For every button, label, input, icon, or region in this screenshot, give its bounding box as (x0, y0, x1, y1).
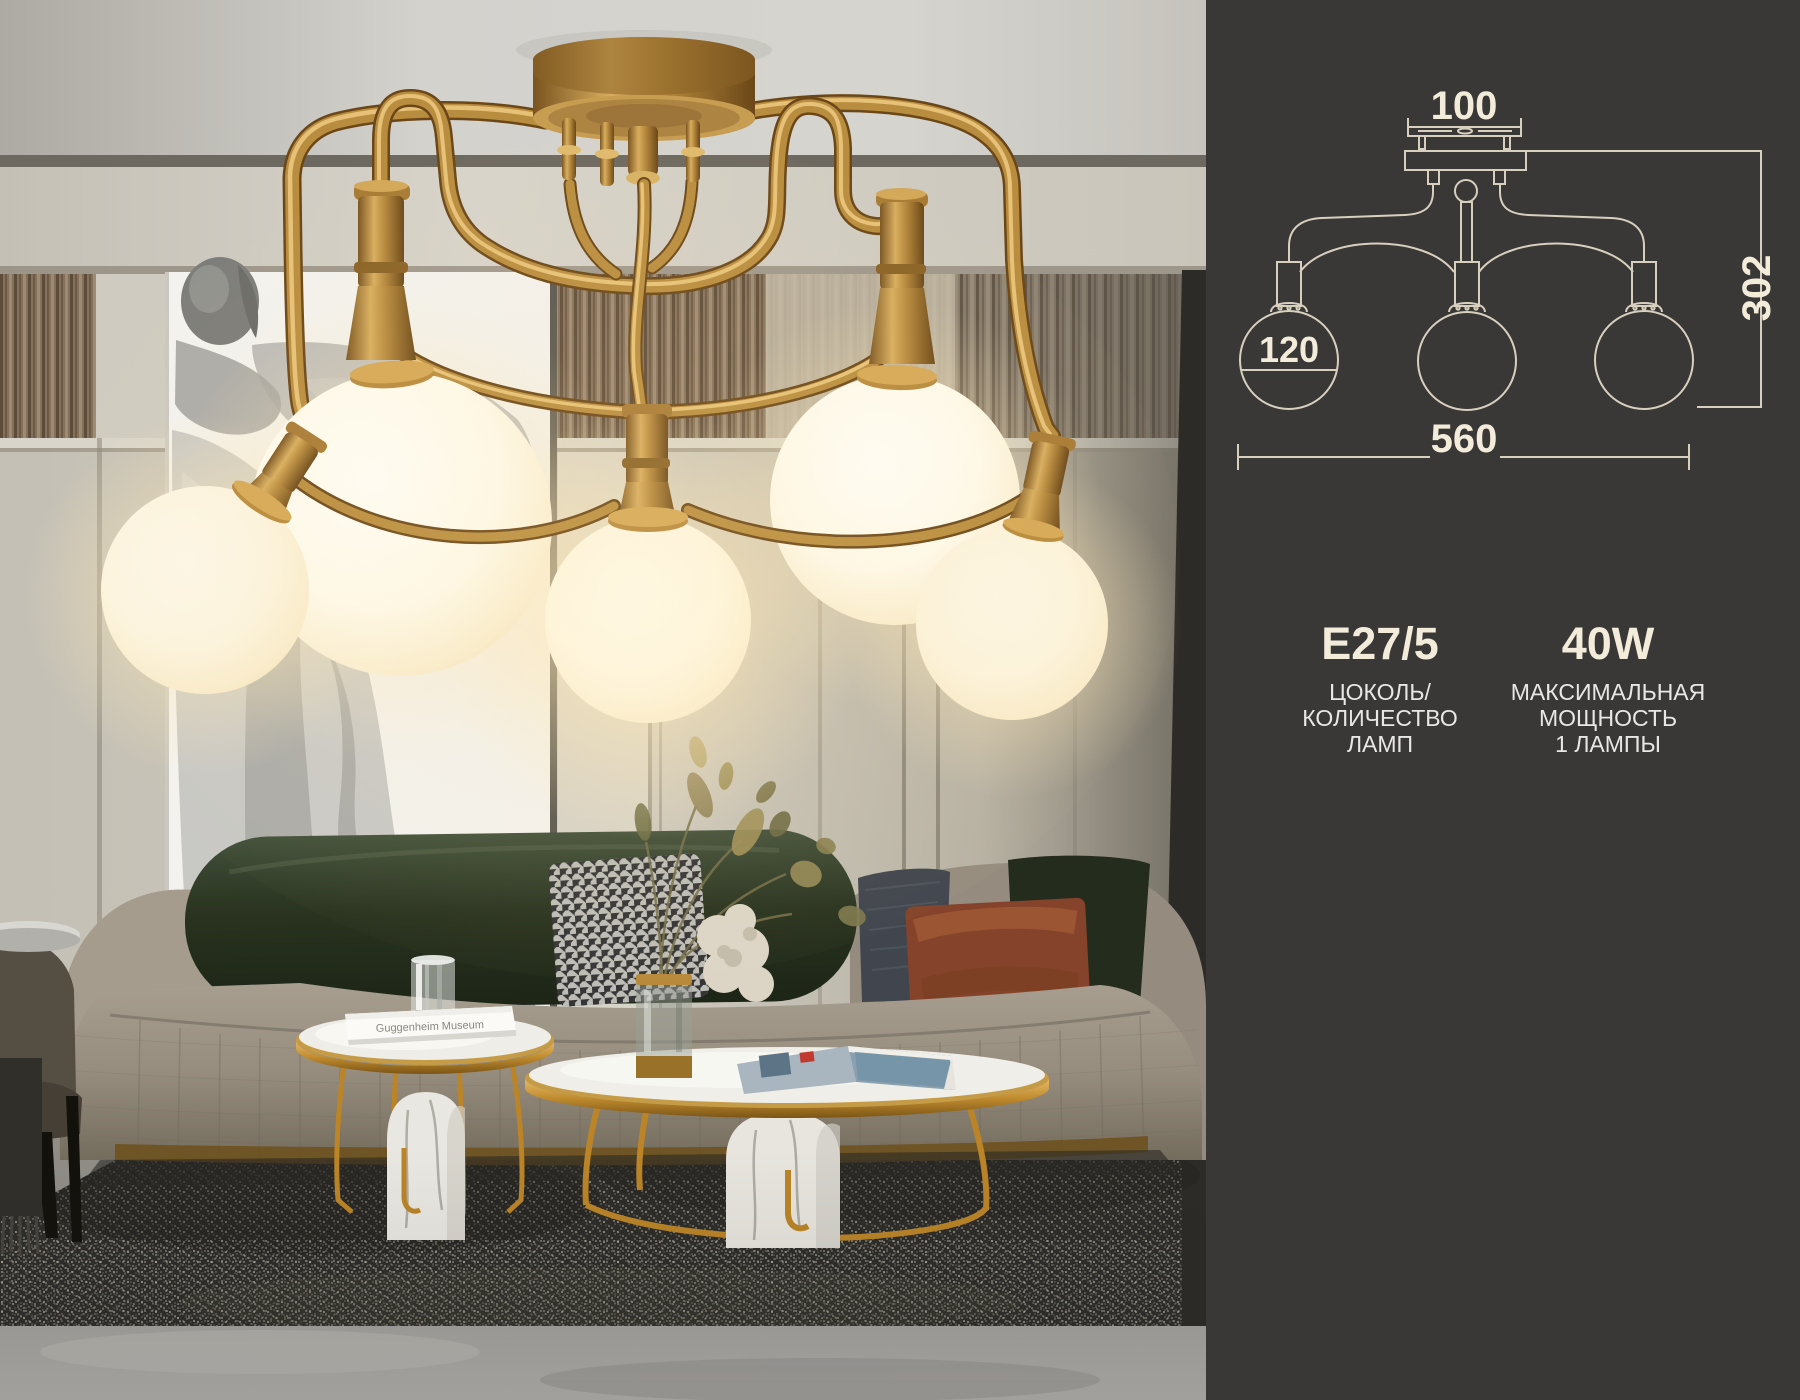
svg-text:560: 560 (1431, 417, 1498, 461)
svg-text:302: 302 (1735, 255, 1779, 322)
svg-text:МОЩНОСТЬ: МОЩНОСТЬ (1539, 705, 1677, 731)
svg-text:E27/5: E27/5 (1321, 618, 1439, 669)
svg-text:100: 100 (1431, 84, 1498, 128)
svg-text:40W: 40W (1562, 618, 1655, 669)
svg-text:МАКСИМАЛЬНАЯ: МАКСИМАЛЬНАЯ (1511, 679, 1706, 705)
svg-text:ЛАМП: ЛАМП (1347, 731, 1413, 757)
svg-text:1 ЛАМПЫ: 1 ЛАМПЫ (1555, 731, 1661, 757)
svg-text:ЦОКОЛЬ/: ЦОКОЛЬ/ (1329, 679, 1431, 705)
svg-text:120: 120 (1259, 329, 1319, 370)
svg-text:КОЛИЧЕСТВО: КОЛИЧЕСТВО (1302, 705, 1457, 731)
